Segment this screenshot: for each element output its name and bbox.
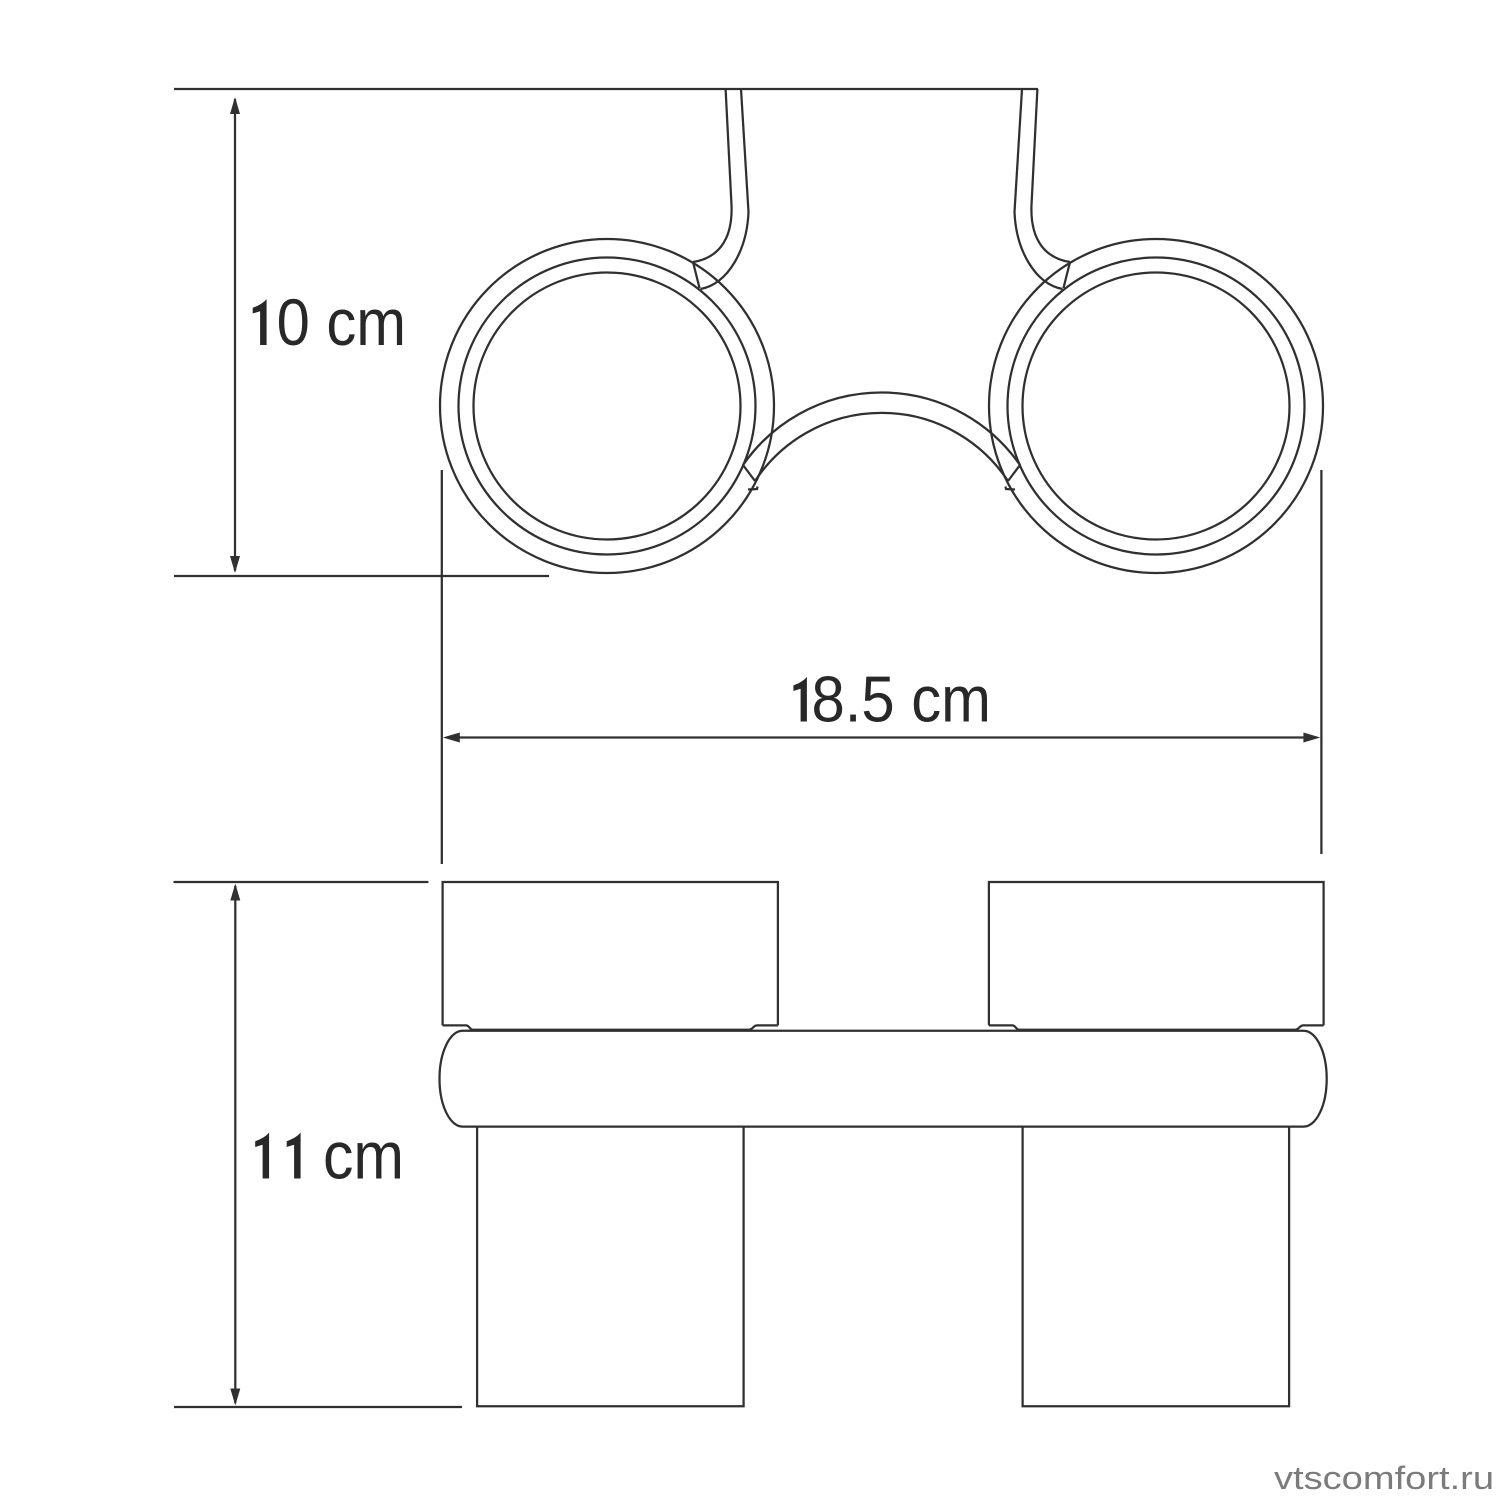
svg-text:0 cm: 0 cm (277, 285, 407, 359)
svg-text:8.5 cm: 8.5 cm (812, 664, 992, 736)
svg-text:vtscomfort.ru: vtscomfort.ru (1274, 1460, 1494, 1496)
svg-text:cm: cm (323, 1120, 404, 1194)
